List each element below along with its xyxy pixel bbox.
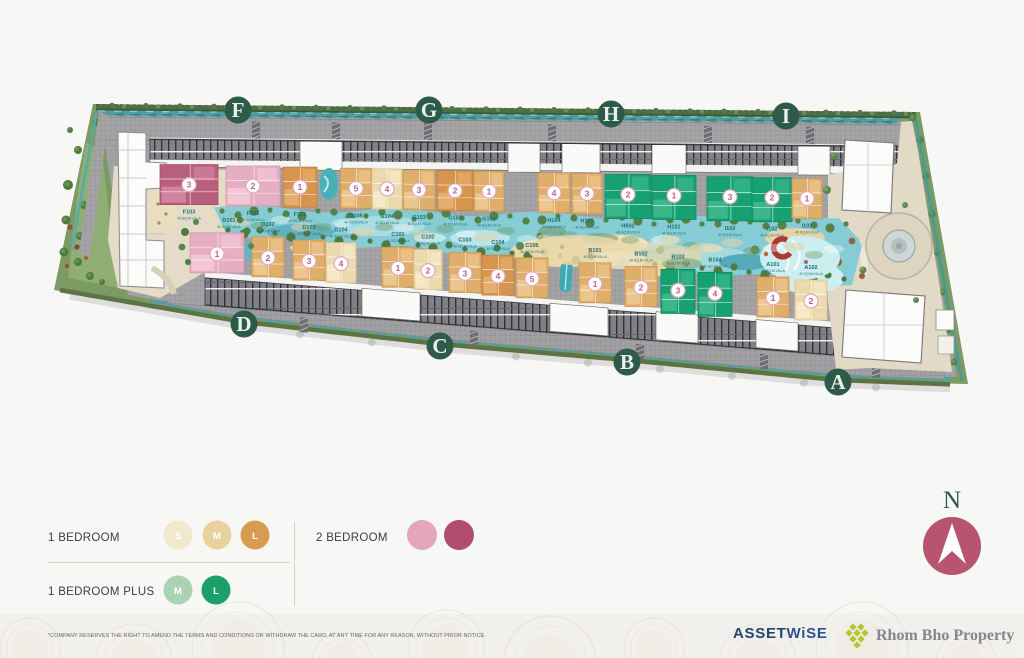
- svg-text:40 SQ.M VILLA: 40 SQ.M VILLA: [666, 261, 690, 265]
- svg-text:C103: C103: [458, 238, 471, 244]
- svg-text:1 BEDROOM: 1 BEDROOM: [48, 532, 120, 544]
- svg-text:2: 2: [639, 283, 644, 293]
- svg-text:*COMPANY RESERVES THE RIGHT TO: *COMPANY RESERVES THE RIGHT TO AMEND THE…: [48, 633, 486, 639]
- svg-text:3: 3: [417, 185, 422, 195]
- svg-text:M: M: [213, 531, 221, 542]
- svg-text:40 SQ.M VILLA: 40 SQ.M VILLA: [407, 222, 431, 226]
- svg-text:40 SQ.M VILLA: 40 SQ.M VILLA: [217, 225, 241, 229]
- svg-text:4: 4: [385, 184, 390, 194]
- svg-text:A101: A101: [766, 262, 779, 268]
- svg-text:2: 2: [266, 253, 271, 263]
- svg-text:D: D: [236, 312, 251, 336]
- svg-text:1: 1: [396, 263, 401, 273]
- svg-text:L: L: [252, 531, 258, 542]
- svg-text:2 BEDROOM: 2 BEDROOM: [316, 532, 388, 544]
- svg-text:B: B: [620, 350, 634, 374]
- svg-text:40 SQ.M VILLA: 40 SQ.M VILLA: [288, 219, 312, 223]
- svg-text:C105: C105: [525, 243, 538, 249]
- svg-text:4: 4: [496, 271, 501, 281]
- svg-text:1: 1: [215, 249, 220, 259]
- svg-text:40 SQ.M VILLA: 40 SQ.M VILLA: [760, 234, 784, 238]
- svg-text:G: G: [421, 98, 437, 122]
- svg-text:40 SQ.M VILLA: 40 SQ.M VILLA: [477, 223, 501, 227]
- svg-text:3: 3: [585, 189, 590, 199]
- svg-text:M: M: [174, 586, 182, 597]
- svg-text:B104: B104: [708, 257, 722, 263]
- svg-text:40 SQ.M VILLA: 40 SQ.M VILLA: [799, 272, 823, 276]
- svg-text:1: 1: [672, 191, 677, 201]
- svg-text:3: 3: [307, 256, 312, 266]
- svg-text:40 SQ.M VILLA: 40 SQ.M VILLA: [329, 235, 353, 239]
- svg-text:40 SQ.M VILLA: 40 SQ.M VILLA: [297, 232, 321, 236]
- svg-text:C101: C101: [391, 232, 404, 238]
- svg-text:3: 3: [187, 180, 192, 190]
- svg-text:Rhom Bho Property: Rhom Bho Property: [876, 627, 1014, 644]
- svg-text:ASSETWiSE: ASSETWiSE: [733, 625, 828, 642]
- svg-text:5: 5: [354, 183, 359, 193]
- svg-text:I: I: [782, 104, 790, 128]
- svg-text:40 SQ.M VILLA: 40 SQ.M VILLA: [616, 231, 640, 235]
- svg-text:F: F: [232, 98, 245, 122]
- svg-text:N: N: [943, 487, 961, 514]
- svg-text:40 SQ.M VILLA: 40 SQ.M VILLA: [520, 250, 544, 254]
- svg-text:40 SQ.M VILLA: 40 SQ.M VILLA: [575, 226, 599, 230]
- svg-text:4: 4: [339, 259, 344, 269]
- svg-text:3: 3: [728, 192, 733, 202]
- svg-text:40 SQ.M VILLA: 40 SQ.M VILLA: [703, 264, 727, 268]
- svg-text:D102: D102: [261, 222, 274, 228]
- svg-text:G105: G105: [349, 213, 362, 219]
- svg-text:B102: B102: [634, 252, 647, 258]
- svg-text:40 SQ.M VILLA: 40 SQ.M VILLA: [486, 247, 510, 251]
- svg-text:H101: H101: [667, 225, 680, 231]
- svg-text:D103: D103: [302, 225, 315, 231]
- svg-text:A102: A102: [804, 265, 817, 271]
- svg-text:40 SQ.M VILLA: 40 SQ.M VILLA: [416, 242, 440, 246]
- svg-text:I102: I102: [767, 227, 778, 233]
- svg-text:40 SQ.M VILLA: 40 SQ.M VILLA: [443, 223, 467, 227]
- svg-text:G101: G101: [482, 216, 495, 222]
- svg-text:3: 3: [676, 285, 681, 295]
- svg-text:4: 4: [713, 288, 718, 298]
- svg-text:3: 3: [463, 269, 468, 279]
- svg-text:2: 2: [426, 266, 431, 276]
- svg-text:2: 2: [770, 193, 775, 203]
- svg-text:40 SQ.M VILLA: 40 SQ.M VILLA: [375, 221, 399, 225]
- svg-text:1 BEDROOM PLUS: 1 BEDROOM PLUS: [48, 586, 154, 598]
- svg-text:40 SQ.M VILLA: 40 SQ.M VILLA: [583, 255, 607, 259]
- svg-text:H602: H602: [621, 224, 634, 230]
- svg-text:2: 2: [626, 190, 631, 200]
- svg-text:40 SQ.M VILLA: 40 SQ.M VILLA: [795, 231, 819, 235]
- svg-text:H103: H103: [580, 219, 593, 225]
- svg-text:G103: G103: [412, 215, 425, 221]
- svg-text:1: 1: [805, 194, 810, 204]
- svg-text:40 SQ.M VILLA: 40 SQ.M VILLA: [542, 225, 566, 229]
- svg-text:C: C: [432, 334, 447, 358]
- svg-text:40 SQ.M VILLA: 40 SQ.M VILLA: [718, 233, 742, 237]
- svg-text:40 SQ.M VILLA: 40 SQ.M VILLA: [386, 239, 410, 243]
- svg-text:B101: B101: [588, 248, 601, 254]
- svg-text:1: 1: [771, 293, 776, 303]
- svg-text:C102: C102: [421, 235, 434, 241]
- svg-text:G102: G102: [448, 216, 461, 222]
- svg-text:H: H: [603, 102, 619, 126]
- svg-text:1: 1: [298, 182, 303, 192]
- svg-text:C104: C104: [491, 240, 505, 246]
- svg-text:2: 2: [453, 186, 458, 196]
- svg-text:S: S: [175, 531, 181, 542]
- svg-text:40 SQ.M VILLA: 40 SQ.M VILLA: [629, 259, 653, 263]
- svg-text:F101: F101: [294, 212, 307, 218]
- svg-text:A: A: [830, 370, 846, 394]
- svg-text:40 SQ.M VILLA: 40 SQ.M VILLA: [761, 269, 785, 273]
- svg-text:B103: B103: [671, 254, 684, 260]
- svg-text:40 SQ.M VILLA: 40 SQ.M VILLA: [453, 245, 477, 249]
- svg-text:F102: F102: [247, 211, 260, 217]
- svg-text:40 SQ.M VILLA: 40 SQ.M VILLA: [256, 229, 280, 233]
- svg-text:1: 1: [487, 186, 492, 196]
- svg-text:5: 5: [530, 274, 535, 284]
- svg-text:D104: D104: [334, 228, 348, 234]
- svg-text:40 SQ.M VILLA: 40 SQ.M VILLA: [344, 220, 368, 224]
- svg-text:D101: D101: [222, 218, 235, 224]
- svg-text:F103: F103: [183, 210, 196, 216]
- svg-text:2: 2: [809, 296, 814, 306]
- svg-text:H104: H104: [547, 218, 561, 224]
- svg-text:40 SQ.M VILLA: 40 SQ.M VILLA: [662, 232, 686, 236]
- svg-text:1: 1: [593, 279, 598, 289]
- svg-text:L: L: [213, 586, 219, 597]
- svg-text:2: 2: [251, 181, 256, 191]
- svg-text:G104: G104: [380, 214, 394, 220]
- svg-text:I103: I103: [725, 226, 736, 232]
- svg-text:4: 4: [552, 188, 557, 198]
- svg-text:I101: I101: [802, 224, 813, 230]
